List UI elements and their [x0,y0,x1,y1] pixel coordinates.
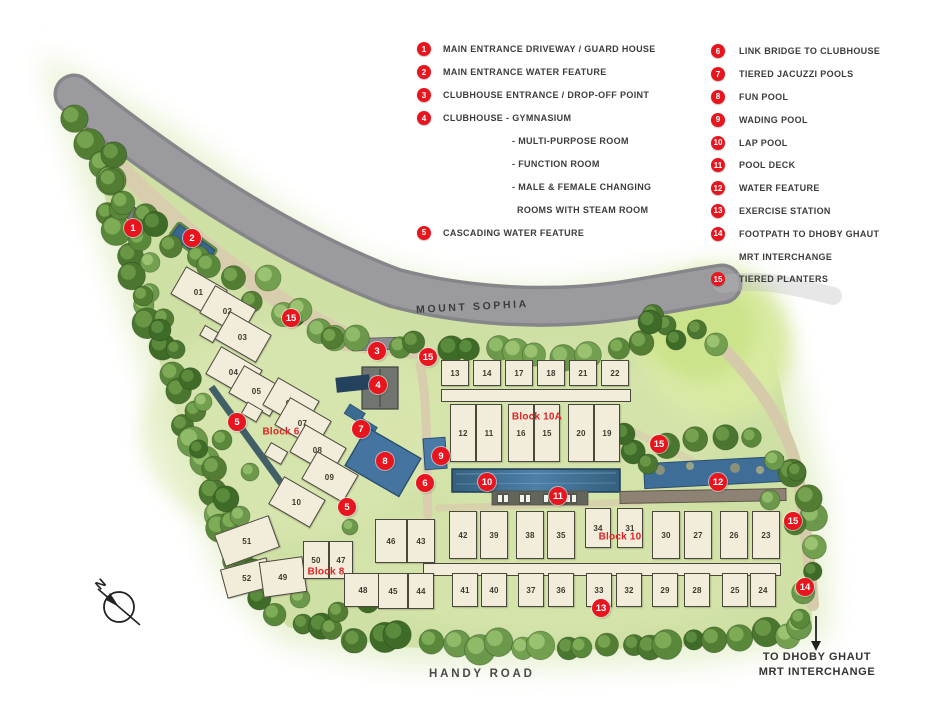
unit-26: 26 [720,511,748,559]
unit-number: 14 [482,369,491,378]
legend-number-badge: 7 [711,67,725,81]
map-marker-2: 2 [183,229,201,247]
legend-right-column: 6LINK BRIDGE TO CLUBHOUSE7TIERED JACUZZI… [711,40,880,291]
legend-number-badge: 14 [711,227,725,241]
legend-item-7: 7TIERED JACUZZI POOLS [711,63,880,86]
legend-item-13: 13EXERCISE STATION [711,200,880,223]
unit-38: 38 [516,511,544,559]
legend-subline-label: MRT INTERCHANGE [739,252,832,262]
map-marker-5: 5 [228,413,246,431]
legend-number-badge: 8 [711,90,725,104]
svg-text:N: N [92,575,109,592]
unit-number: 48 [358,586,367,595]
exit-label-line1: TO DHOBY GHAUT [759,650,876,665]
unit-39: 39 [480,511,508,559]
unit-number: 30 [661,531,670,540]
legend-item-label: LINK BRIDGE TO CLUBHOUSE [739,46,880,56]
unit-11: 11 [476,404,502,462]
legend-subline-label: - MULTI-PURPOSE ROOM [443,136,629,146]
unit-number: 01 [194,288,203,297]
unit-number: 21 [578,369,587,378]
unit-19: 19 [594,404,620,462]
unit-25: 25 [722,573,748,607]
legend-item-label: CLUBHOUSE ENTRANCE / DROP-OFF POINT [443,90,649,100]
map-marker-6: 6 [416,474,434,492]
legend-number-badge: 11 [711,158,725,172]
map-marker-14: 14 [796,578,814,596]
unit-number: 33 [594,586,603,595]
map-marker-11: 11 [549,487,567,505]
unit-number: 26 [729,531,738,540]
legend-item-2: 2MAIN ENTRANCE WATER FEATURE [417,61,656,84]
block-label-block-6: Block 6 [263,427,300,438]
map-marker-12: 12 [709,473,727,491]
unit-48: 48 [344,573,382,607]
legend-item-6: 6LINK BRIDGE TO CLUBHOUSE [711,40,880,63]
unit-number: 44 [416,587,425,596]
legend-number-badge: 2 [417,65,431,79]
block-label-block-10a: Block 10A [512,412,562,423]
map-marker-13: 13 [592,599,610,617]
block-label-block-8: Block 8 [308,567,345,578]
unit-18: 18 [537,360,565,386]
unit-number: 20 [576,429,585,438]
legend-item-label: CLUBHOUSE - GYMNASIUM [443,113,571,123]
unit-45: 45 [378,573,408,609]
exit-label-line2: MRT INTERCHANGE [759,665,876,680]
unit-number: 45 [388,587,397,596]
unit-41: 41 [452,573,478,607]
exit-label-dhoby-ghaut: TO DHOBY GHAUT MRT INTERCHANGE [759,650,876,680]
legend-item-label: TIERED JACUZZI POOLS [739,69,854,79]
unit-number: 42 [458,531,467,540]
map-marker-9: 9 [432,447,450,465]
legend-subline-label: ROOMS WITH STEAM ROOM [443,205,648,215]
compass: N [92,575,140,625]
unit-number: 38 [525,531,534,540]
unit-32: 32 [616,573,642,607]
legend-item-label: CASCADING WATER FEATURE [443,228,584,238]
legend-item-label: FOOTPATH TO DHOBY GHAUT [739,229,879,239]
unit-number: 28 [692,586,701,595]
unit-number: 19 [602,429,611,438]
unit-30: 30 [652,511,680,559]
unit-number: 37 [526,586,535,595]
legend-item-9: 9WADING POOL [711,108,880,131]
legend-item-3: 3CLUBHOUSE ENTRANCE / DROP-OFF POINT [417,84,656,107]
legend-item-14-subline: MRT INTERCHANGE [711,245,880,268]
map-marker-5: 5 [338,498,356,516]
unit-number: 23 [761,531,770,540]
map-marker-15: 15 [419,348,437,366]
legend-item-5: 5CASCADING WATER FEATURE [417,221,656,244]
unit-23: 23 [752,511,780,559]
unit-number: 39 [489,531,498,540]
legend-item-12: 12WATER FEATURE [711,177,880,200]
unit-17: 17 [505,360,533,386]
legend-item-4: 4CLUBHOUSE - GYMNASIUM [417,107,656,130]
legend-number-badge: 1 [417,42,431,56]
unit-number: 46 [386,537,395,546]
legend-item-label: WADING POOL [739,115,808,125]
unit-number: 24 [758,586,767,595]
unit-28: 28 [684,573,710,607]
map-marker-15: 15 [650,435,668,453]
legend-item-label: POOL DECK [739,160,796,170]
unit-12: 12 [450,404,476,462]
legend-number-badge: 9 [711,113,725,127]
legend-subline-label: - FUNCTION ROOM [443,159,600,169]
unit-number: 52 [242,574,251,583]
legend-item-label: TIERED PLANTERS [739,274,828,284]
unit-number: 17 [514,369,523,378]
legend-left-column: 1MAIN ENTRANCE DRIVEWAY / GUARD HOUSE2MA… [417,38,656,244]
legend-number-badge: 13 [711,204,725,218]
unit-number: 03 [238,333,247,342]
unit-number: 43 [416,537,425,546]
legend-item-4-subline: - MALE & FEMALE CHANGING [417,175,656,198]
map-marker-15: 15 [784,512,802,530]
unit-42: 42 [449,511,477,559]
unit-number: 18 [546,369,555,378]
legend-item-8: 8FUN POOL [711,86,880,109]
legend-item-14: 14FOOTPATH TO DHOBY GHAUT [711,222,880,245]
unit-number: 29 [660,586,669,595]
unit-number: 27 [693,531,702,540]
legend-number-badge: 12 [711,181,725,195]
unit-number: 51 [242,537,251,546]
legend-item-1: 1MAIN ENTRANCE DRIVEWAY / GUARD HOUSE [417,38,656,61]
unit-number: 47 [336,556,345,565]
unit-37: 37 [518,573,544,607]
street-label-handy-road: HANDY ROAD [429,668,535,680]
unit-35: 35 [547,511,575,559]
legend-number-badge: 3 [417,88,431,102]
unit-20: 20 [568,404,594,462]
legend-number-badge: 5 [417,226,431,240]
legend-number-badge: 10 [711,136,725,150]
unit-40: 40 [481,573,507,607]
legend-item-10: 10LAP POOL [711,131,880,154]
unit-21: 21 [569,360,597,386]
unit-49: 49 [259,556,308,598]
unit-number: 10 [292,498,301,507]
legend-number-badge: 4 [417,111,431,125]
legend-item-label: EXERCISE STATION [739,206,831,216]
unit-number: 12 [458,429,467,438]
legend-number-badge: 15 [711,272,725,286]
unit-43: 43 [407,519,435,563]
unit-number: 41 [460,586,469,595]
block-label-block-10: Block 10 [599,532,642,543]
unit-number: 49 [278,573,287,582]
unit-number: 22 [610,369,619,378]
unit-44: 44 [408,573,434,609]
legend-item-4-subline: ROOMS WITH STEAM ROOM [417,198,656,221]
unit-number: 15 [542,429,551,438]
legend-item-label: WATER FEATURE [739,183,820,193]
unit-22: 22 [601,360,629,386]
unit-13: 13 [441,360,469,386]
legend-item-label: LAP POOL [739,138,788,148]
legend-subline-label: - MALE & FEMALE CHANGING [443,182,651,192]
legend-item-4-subline: - MULTI-PURPOSE ROOM [417,130,656,153]
unit-number: 50 [311,556,320,565]
legend-item-11: 11POOL DECK [711,154,880,177]
unit-number: 11 [485,429,494,438]
unit-14: 14 [473,360,501,386]
map-marker-3: 3 [368,342,386,360]
unit-number: 16 [516,429,525,438]
legend-item-label: MAIN ENTRANCE WATER FEATURE [443,67,607,77]
unit-36: 36 [548,573,574,607]
unit-46: 46 [375,519,407,563]
unit-number: 05 [252,387,261,396]
unit-number: 36 [556,586,565,595]
link-corridor-block10a [441,389,631,402]
unit-number: 32 [624,586,633,595]
site-plan: N MOUNT SOPHIA HANDY ROAD TO DHOBY GHAUT… [0,0,943,717]
legend-item-label: FUN POOL [739,92,788,102]
unit-27: 27 [684,511,712,559]
map-marker-15: 15 [282,309,300,327]
legend-item-label: MAIN ENTRANCE DRIVEWAY / GUARD HOUSE [443,44,656,54]
unit-number: 13 [450,369,459,378]
map-marker-4: 4 [369,376,387,394]
unit-number: 09 [325,473,334,482]
map-marker-1: 1 [124,219,142,237]
legend-number-badge: 6 [711,44,725,58]
map-marker-10: 10 [478,473,496,491]
legend-item-4-subline: - FUNCTION ROOM [417,152,656,175]
unit-number: 40 [489,586,498,595]
map-marker-7: 7 [352,420,370,438]
unit-number: 25 [730,586,739,595]
map-marker-8: 8 [376,452,394,470]
unit-number: 35 [556,531,565,540]
unit-24: 24 [750,573,776,607]
unit-29: 29 [652,573,678,607]
legend-item-15: 15TIERED PLANTERS [711,268,880,291]
